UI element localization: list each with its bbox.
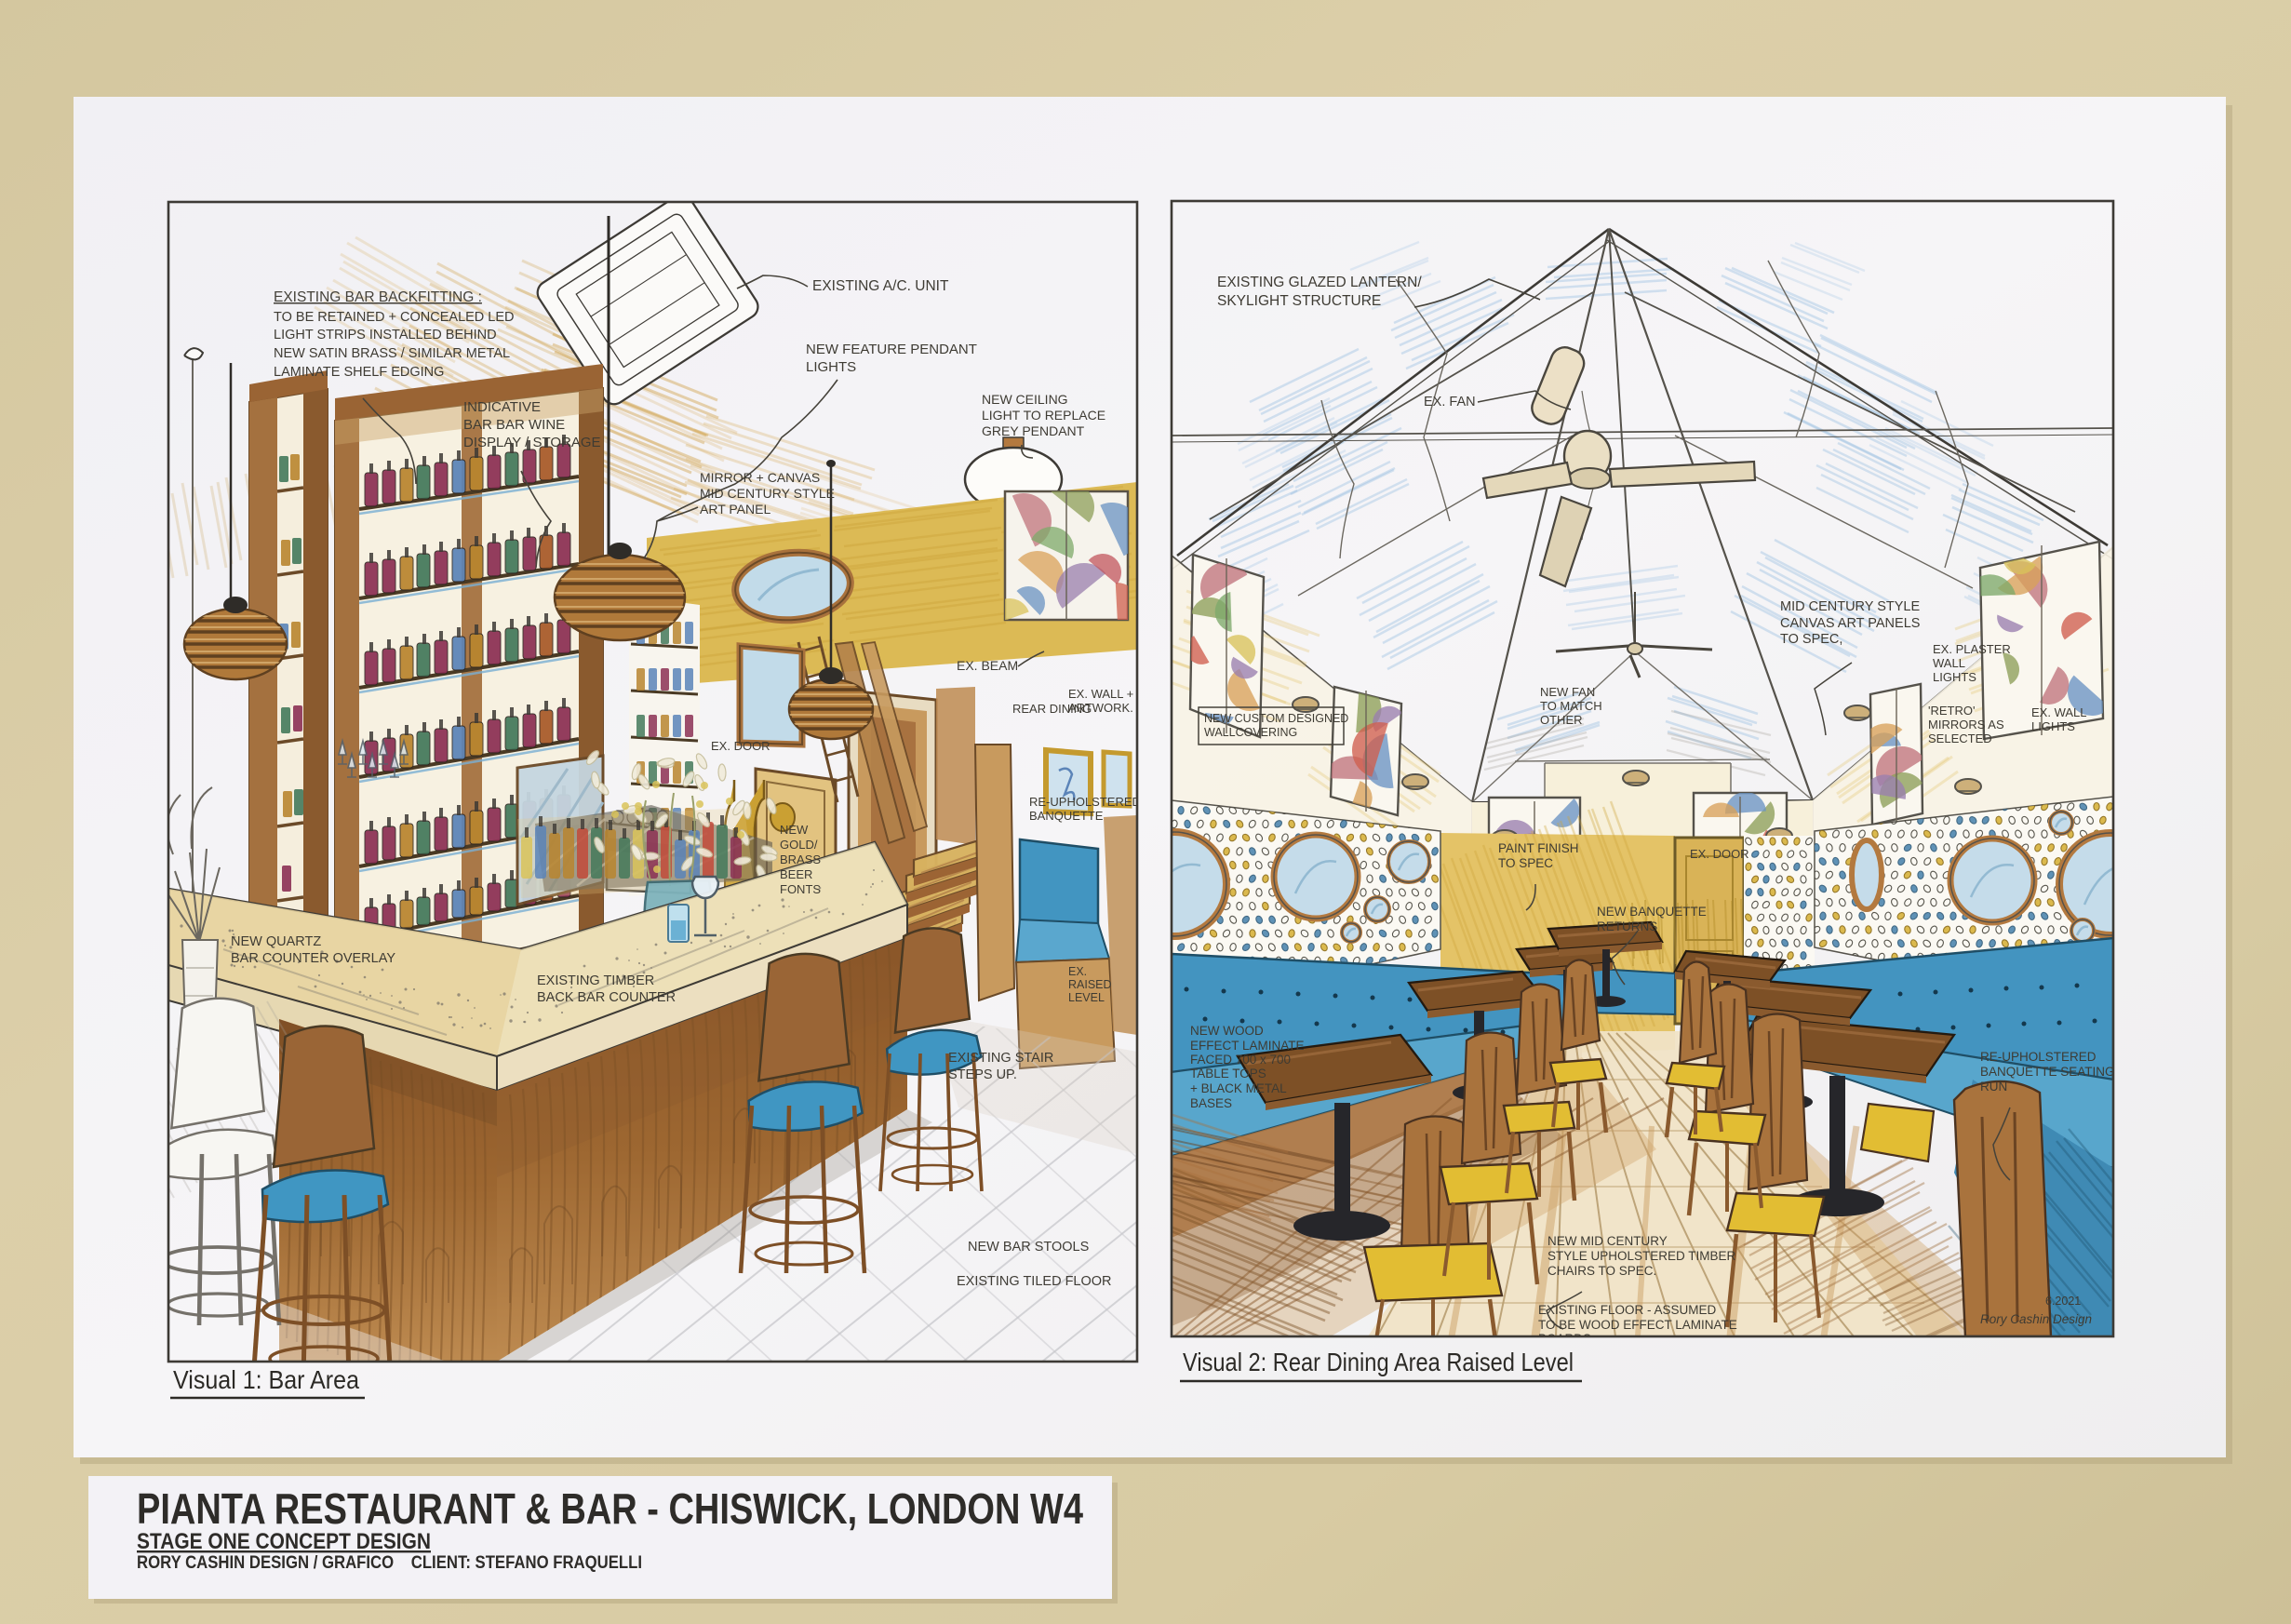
svg-text:BASES: BASES bbox=[1190, 1096, 1232, 1110]
svg-text:ART PANEL: ART PANEL bbox=[700, 502, 770, 517]
svg-text:LIGHTS: LIGHTS bbox=[806, 359, 856, 375]
svg-text:EX.: EX. bbox=[1068, 965, 1087, 978]
svg-text:EX. BEAM: EX. BEAM bbox=[957, 658, 1018, 673]
svg-text:NEW MID CENTURY: NEW MID CENTURY bbox=[1547, 1234, 1668, 1248]
svg-text:EXISTING GLAZED LANTERN/: EXISTING GLAZED LANTERN/ bbox=[1217, 275, 1422, 290]
svg-text:LIGHTS: LIGHTS bbox=[2031, 719, 2075, 733]
svg-text:RORY CASHIN DESIGN / GRAFICO: RORY CASHIN DESIGN / GRAFICO CLIENT: STE… bbox=[137, 1553, 642, 1573]
svg-text:BRASS: BRASS bbox=[780, 852, 821, 866]
svg-text:INDICATIVE: INDICATIVE bbox=[463, 399, 541, 415]
svg-text:EX. WALL: EX. WALL bbox=[2031, 705, 2086, 719]
svg-text:CHAIRS TO SPEC.: CHAIRS TO SPEC. bbox=[1547, 1264, 1656, 1278]
svg-text:FONTS: FONTS bbox=[780, 882, 821, 896]
svg-text:EXISTING STAIR: EXISTING STAIR bbox=[948, 1051, 1053, 1066]
svg-text:NEW FAN: NEW FAN bbox=[1540, 685, 1595, 699]
svg-text:REAR DINING: REAR DINING bbox=[1012, 702, 1092, 716]
svg-text:EX. DOOR: EX. DOOR bbox=[711, 739, 770, 753]
svg-text:BAR BAR WINE: BAR BAR WINE bbox=[463, 417, 565, 433]
svg-text:EXISTING BAR BACKFITTING :: EXISTING BAR BACKFITTING : bbox=[274, 289, 482, 305]
svg-text:TO MATCH: TO MATCH bbox=[1540, 699, 1602, 713]
svg-text:6.2021: 6.2021 bbox=[2045, 1295, 2081, 1308]
svg-text:LIGHT STRIPS INSTALLED BEHIND: LIGHT STRIPS INSTALLED BEHIND bbox=[274, 328, 497, 342]
svg-text:NEW BAR STOOLS: NEW BAR STOOLS bbox=[968, 1240, 1089, 1255]
svg-text:WALL: WALL bbox=[1933, 656, 1965, 670]
svg-text:'RETRO': 'RETRO' bbox=[1928, 704, 1975, 718]
svg-text:NEW SATIN BRASS / SIMILAR META: NEW SATIN BRASS / SIMILAR METAL bbox=[274, 346, 510, 361]
svg-text:LEVEL: LEVEL bbox=[1068, 991, 1105, 1004]
svg-text:NEW FEATURE PENDANT: NEW FEATURE PENDANT bbox=[806, 342, 977, 357]
svg-text:RAISED: RAISED bbox=[1068, 978, 1112, 991]
svg-text:RE-UPHOLSTERED: RE-UPHOLSTERED bbox=[1980, 1050, 2097, 1064]
svg-text:TABLE TOPS: TABLE TOPS bbox=[1190, 1067, 1266, 1080]
svg-text:Visual 2: Rear Dining Area Rai: Visual 2: Rear Dining Area Raised Level bbox=[1183, 1348, 1574, 1376]
svg-text:MIRRORS AS: MIRRORS AS bbox=[1928, 718, 2004, 731]
svg-text:BANQUETTE SEATING: BANQUETTE SEATING bbox=[1980, 1065, 2115, 1079]
svg-text:EXISTING TILED FLOOR: EXISTING TILED FLOOR bbox=[957, 1274, 1112, 1289]
svg-text:STYLE UPHOLSTERED TIMBER: STYLE UPHOLSTERED TIMBER bbox=[1547, 1249, 1736, 1263]
svg-text:OTHER: OTHER bbox=[1540, 713, 1583, 727]
svg-text:BANQUETTE: BANQUETTE bbox=[1029, 809, 1104, 823]
svg-text:FACED 700 x 700: FACED 700 x 700 bbox=[1190, 1053, 1291, 1067]
svg-text:SELECTED: SELECTED bbox=[1928, 731, 1992, 745]
svg-text:STAGE ONE CONCEPT DESIGN: STAGE ONE CONCEPT DESIGN bbox=[137, 1529, 431, 1554]
svg-text:LIGHTS: LIGHTS bbox=[1933, 670, 1976, 684]
svg-text:DISPLAY / STORAGE: DISPLAY / STORAGE bbox=[463, 435, 601, 450]
svg-text:GOLD/: GOLD/ bbox=[780, 838, 818, 852]
svg-text:WALLCOVERING: WALLCOVERING bbox=[1204, 726, 1297, 739]
svg-text:NEW QUARTZ: NEW QUARTZ bbox=[231, 934, 321, 949]
svg-text:TO BE RETAINED + CONCEALED LED: TO BE RETAINED + CONCEALED LED bbox=[274, 310, 515, 325]
svg-text:MIRROR + CANVAS: MIRROR + CANVAS bbox=[700, 470, 820, 485]
svg-text:NEW BANQUETTE: NEW BANQUETTE bbox=[1597, 905, 1707, 919]
svg-text:Rory Cashin Design: Rory Cashin Design bbox=[1980, 1312, 2092, 1326]
svg-text:NEW: NEW bbox=[780, 823, 809, 837]
svg-text:MID CENTURY STYLE: MID CENTURY STYLE bbox=[700, 486, 835, 501]
svg-text:EX. FAN: EX. FAN bbox=[1424, 395, 1476, 409]
svg-text:EXISTING FLOOR - ASSUMED: EXISTING FLOOR - ASSUMED bbox=[1538, 1303, 1717, 1317]
svg-text:LIGHT TO REPLACE: LIGHT TO REPLACE bbox=[982, 408, 1105, 423]
svg-text:NEW CUSTOM DESIGNED: NEW CUSTOM DESIGNED bbox=[1204, 712, 1348, 725]
svg-text:TO BE WOOD EFFECT LAMINATE: TO BE WOOD EFFECT LAMINATE bbox=[1538, 1318, 1737, 1332]
svg-text:EFFECT LAMINATE: EFFECT LAMINATE bbox=[1190, 1039, 1305, 1053]
svg-text:LAMINATE SHELF EDGING: LAMINATE SHELF EDGING bbox=[274, 365, 444, 380]
svg-text:STEPS UP.: STEPS UP. bbox=[948, 1067, 1017, 1082]
svg-text:BAR COUNTER OVERLAY: BAR COUNTER OVERLAY bbox=[231, 951, 395, 966]
svg-text:NEW WOOD: NEW WOOD bbox=[1190, 1024, 1264, 1038]
svg-text:MID CENTURY STYLE: MID CENTURY STYLE bbox=[1780, 599, 1920, 614]
svg-text:EX. WALL +: EX. WALL + bbox=[1068, 687, 1133, 701]
svg-text:Visual 1: Bar Area: Visual 1: Bar Area bbox=[173, 1365, 359, 1394]
svg-text:EX. DOOR: EX. DOOR bbox=[1690, 847, 1749, 861]
svg-text:RUN: RUN bbox=[1980, 1080, 2007, 1094]
svg-text:NEW CEILING: NEW CEILING bbox=[982, 392, 1068, 407]
svg-text:SKYLIGHT STRUCTURE: SKYLIGHT STRUCTURE bbox=[1217, 293, 1381, 309]
svg-text:BACK BAR COUNTER: BACK BAR COUNTER bbox=[537, 990, 676, 1005]
svg-text:RE-UPHOLSTERED: RE-UPHOLSTERED bbox=[1029, 795, 1141, 809]
svg-text:RETURNS: RETURNS bbox=[1597, 919, 1657, 933]
svg-text:BEER: BEER bbox=[780, 867, 812, 881]
svg-text:+ BLACK METAL: + BLACK METAL bbox=[1190, 1081, 1287, 1095]
svg-text:PAINT FINISH: PAINT FINISH bbox=[1498, 841, 1579, 855]
svg-text:TO SPEC: TO SPEC bbox=[1498, 856, 1553, 870]
svg-text:CANVAS ART PANELS: CANVAS ART PANELS bbox=[1780, 616, 1920, 631]
svg-text:EX. PLASTER: EX. PLASTER bbox=[1933, 642, 2011, 656]
svg-text:TO SPEC,: TO SPEC, bbox=[1780, 632, 1842, 647]
svg-text:PIANTA RESTAURANT & BAR - CHIS: PIANTA RESTAURANT & BAR - CHISWICK, LOND… bbox=[137, 1484, 1083, 1533]
svg-text:EXISTING A/C. UNIT: EXISTING A/C. UNIT bbox=[812, 278, 949, 294]
svg-text:GREY PENDANT: GREY PENDANT bbox=[982, 423, 1085, 438]
svg-text:EXISTING TIMBER: EXISTING TIMBER bbox=[537, 973, 654, 988]
